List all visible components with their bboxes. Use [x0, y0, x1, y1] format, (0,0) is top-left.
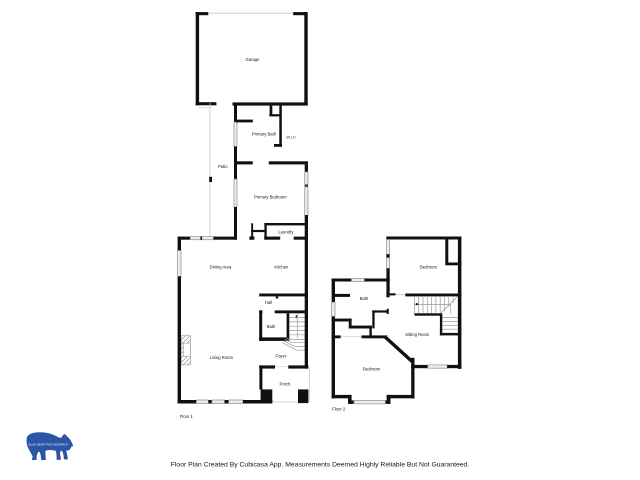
svg-text:Sitting Room: Sitting Room	[405, 332, 429, 337]
svg-text:BLUE BEAR PHOTOGRAPHY: BLUE BEAR PHOTOGRAPHY	[29, 443, 69, 447]
svg-text:Primary Bedroom: Primary Bedroom	[254, 195, 287, 200]
svg-text:Floor 2: Floor 2	[332, 406, 346, 411]
svg-text:W.I.C.: W.I.C.	[286, 135, 296, 139]
svg-text:Porch: Porch	[280, 382, 292, 387]
svg-text:Living Room: Living Room	[210, 355, 234, 360]
svg-text:Primary Bath: Primary Bath	[252, 131, 277, 136]
svg-text:Bath: Bath	[267, 324, 276, 329]
svg-text:Floor 1: Floor 1	[180, 414, 194, 419]
svg-text:Laundry: Laundry	[278, 229, 294, 234]
svg-text:Floor Plan Created By Cubicasa: Floor Plan Created By Cubicasa App. Meas…	[171, 461, 470, 468]
svg-text:Bedroom: Bedroom	[363, 367, 381, 372]
svg-text:Kitchen: Kitchen	[274, 265, 289, 270]
svg-text:Dining Area: Dining Area	[210, 265, 232, 270]
svg-text:Bath: Bath	[360, 296, 369, 301]
svg-text:Garage: Garage	[246, 57, 261, 62]
svg-text:Patio: Patio	[218, 164, 228, 169]
svg-text:Hall: Hall	[265, 300, 272, 305]
svg-text:Bedroom: Bedroom	[420, 264, 438, 269]
svg-text:Foyer: Foyer	[276, 353, 287, 358]
